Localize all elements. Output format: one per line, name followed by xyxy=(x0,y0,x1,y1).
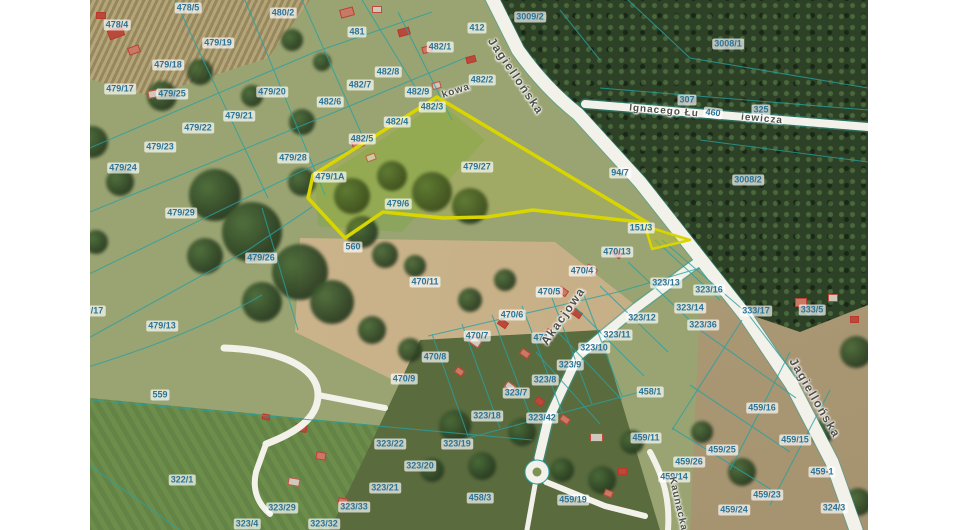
parcel-label: 323/9 xyxy=(557,360,584,371)
parcel-label: 323/8 xyxy=(532,375,559,386)
parcel-label: 323/10 xyxy=(578,343,610,354)
parcel-label: 479/1A xyxy=(313,172,346,183)
parcel-label: 459/19 xyxy=(557,495,589,506)
parcel-label: 3009/2 xyxy=(514,12,546,23)
parcel-label: 459-1 xyxy=(808,467,835,478)
parcel-label: 470/8 xyxy=(422,352,449,363)
street-name-label: kowa xyxy=(441,81,472,100)
parcel-label: 459/26 xyxy=(673,457,705,468)
parcel-label: 459/16 xyxy=(746,403,778,414)
parcel-label: 479/22 xyxy=(182,123,214,134)
parcel-label: 482/2 xyxy=(469,75,496,86)
parcel-label: 559 xyxy=(150,390,169,401)
parcel-label: 94/7 xyxy=(609,168,631,179)
parcel-label: 479/25 xyxy=(156,89,188,100)
parcel-label: 470/5 xyxy=(536,287,563,298)
parcel-label: 482/6 xyxy=(317,97,344,108)
parcel-label: 458/1 xyxy=(637,387,664,398)
parcel-label: 458/3 xyxy=(467,493,494,504)
parcel-label: 323/20 xyxy=(404,461,436,472)
parcel-label: 470/11 xyxy=(409,277,440,288)
parcel-label: 323/22 xyxy=(374,439,406,450)
map-screenshot: 478/5480/23009/2478/44124813008/1479/194… xyxy=(0,0,960,530)
parcel-label: 470/4 xyxy=(569,266,596,277)
parcel-label: 151/3 xyxy=(628,223,655,234)
parcel-label: 459/15 xyxy=(779,435,811,446)
parcel-label: 479/23 xyxy=(144,142,176,153)
left-margin xyxy=(0,0,90,530)
parcel-label: 460 xyxy=(703,106,723,119)
parcel-label: 323/4 xyxy=(234,519,261,530)
parcel-label: 323/33 xyxy=(338,502,370,513)
parcel-label: 323/19 xyxy=(441,439,473,450)
parcel-label: 3008/2 xyxy=(732,175,764,186)
parcel-label: 560 xyxy=(343,242,362,253)
parcel-label: 324/3 xyxy=(821,503,848,514)
street-name-label: Jagiellońska xyxy=(786,356,843,441)
parcel-label: 482/7 xyxy=(347,80,374,91)
map-canvas[interactable]: 478/5480/23009/2478/44124813008/1479/194… xyxy=(0,0,960,530)
parcel-label: 470/6 xyxy=(499,310,526,321)
parcel-label: 482/5 xyxy=(349,134,376,145)
parcel-label: 322/1 xyxy=(169,475,196,486)
parcel-label: 323/7 xyxy=(503,388,530,399)
parcel-label: 333/17 xyxy=(740,306,772,317)
parcel-label: 480/2 xyxy=(270,8,297,19)
parcel-label: 459/23 xyxy=(751,490,783,501)
right-margin xyxy=(868,0,960,530)
parcel-label: 479/19 xyxy=(202,38,234,49)
parcel-label: 482/4 xyxy=(384,117,411,128)
parcel-label: 481 xyxy=(347,27,366,38)
parcel-label: 470/9 xyxy=(391,374,418,385)
parcel-label: 479/20 xyxy=(256,87,288,98)
parcel-label: 478/5 xyxy=(175,3,202,14)
parcel-label: 323/11 xyxy=(601,330,632,341)
parcel-label: 323/16 xyxy=(693,285,725,296)
parcel-label: 482/1 xyxy=(427,42,454,53)
parcel-label: 459/25 xyxy=(706,445,738,456)
parcel-label: 459/11 xyxy=(630,433,661,444)
parcel-label: 479/24 xyxy=(107,163,139,174)
parcel-label: 479/18 xyxy=(152,60,184,71)
parcel-label: 479/27 xyxy=(461,162,493,173)
parcel-label: 479/17 xyxy=(104,84,136,95)
parcel-label: /17 xyxy=(89,306,106,317)
parcel-label: 323/29 xyxy=(266,503,298,514)
parcel-label: 470/13 xyxy=(601,247,633,258)
parcel-label: 459/24 xyxy=(718,505,750,516)
parcel-label: 482/3 xyxy=(419,102,446,113)
parcel-label: 479/13 xyxy=(146,321,178,332)
labels-layer: 478/5480/23009/2478/44124813008/1479/194… xyxy=(0,0,960,530)
parcel-label: 412 xyxy=(467,23,486,34)
parcel-label: 323/32 xyxy=(308,519,340,530)
street-name-label: iewicza xyxy=(741,112,784,127)
parcel-label: 479/26 xyxy=(245,253,277,264)
parcel-label: 479/29 xyxy=(165,208,197,219)
parcel-label: 323/18 xyxy=(471,411,503,422)
parcel-label: 323/21 xyxy=(369,483,401,494)
parcel-label: 323/42 xyxy=(526,413,558,424)
parcel-label: 482/9 xyxy=(405,87,432,98)
parcel-label: 479/21 xyxy=(223,111,255,122)
parcel-label: 479/6 xyxy=(385,199,412,210)
parcel-label: 323/36 xyxy=(687,320,719,331)
parcel-label: 470/7 xyxy=(464,331,491,342)
parcel-label: 323/12 xyxy=(626,313,658,324)
parcel-label: 479/28 xyxy=(277,153,309,164)
parcel-label: 333/5 xyxy=(799,305,826,316)
street-name-label: Kaunacka xyxy=(666,476,689,530)
parcel-label: 323/13 xyxy=(650,278,682,289)
parcel-label: 478/4 xyxy=(104,20,131,31)
parcel-label: 307 xyxy=(677,95,696,106)
parcel-label: 3008/1 xyxy=(712,39,744,50)
parcel-label: 323/14 xyxy=(674,303,706,314)
parcel-label: 482/8 xyxy=(375,67,402,78)
